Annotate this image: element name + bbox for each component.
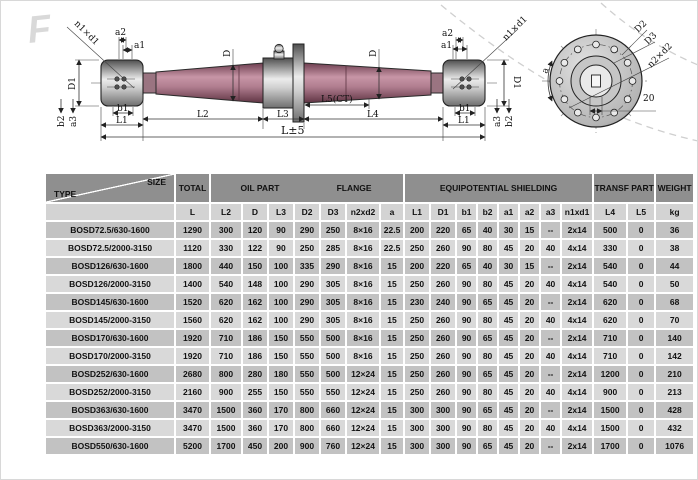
- col-header-a3: a3: [541, 204, 560, 220]
- value-cell: 150: [269, 330, 293, 346]
- svg-text:D: D: [223, 50, 233, 57]
- value-cell: 250: [405, 240, 429, 256]
- group-oil-flange: OIL PARTFLANGE: [211, 174, 403, 202]
- value-cell: 1500: [594, 420, 626, 436]
- col-header-b1: b1: [457, 204, 476, 220]
- value-cell: 660: [321, 420, 345, 436]
- value-cell: 200: [269, 438, 293, 454]
- type-cell: BOSD363/630-1600: [46, 402, 174, 418]
- svg-text:a1: a1: [134, 41, 145, 51]
- type-cell: BOSD145/2000-3150: [46, 312, 174, 328]
- corner-type-label: TYPE: [54, 189, 76, 199]
- table-row: BOSD72.5/630-16001290300120902902508×162…: [46, 222, 693, 238]
- value-cell: 20: [520, 420, 539, 436]
- value-cell: 40: [478, 258, 497, 274]
- svg-text:b1: b1: [117, 104, 129, 114]
- value-cell: 220: [431, 258, 455, 274]
- value-cell: 162: [243, 312, 267, 328]
- col-header-n1xd1: n1xd1: [562, 204, 592, 220]
- value-cell: 90: [457, 366, 476, 382]
- value-cell: 5200: [176, 438, 209, 454]
- value-cell: 45: [499, 420, 518, 436]
- value-cell: 260: [431, 240, 455, 256]
- value-cell: 260: [431, 276, 455, 292]
- value-cell: 305: [321, 276, 345, 292]
- group-header-row: SIZE TYPE TOTAL OIL PARTFLANGE EQUIPOTEN…: [46, 174, 693, 202]
- value-cell: 900: [211, 384, 241, 400]
- value-cell: 250: [405, 330, 429, 346]
- group-transf-part: TRANSF PART: [594, 174, 654, 202]
- value-cell: 300: [431, 402, 455, 418]
- table-row: BOSD550/630-16005200170045020090076012×2…: [46, 438, 693, 454]
- value-cell: 220: [431, 222, 455, 238]
- value-cell: 90: [457, 294, 476, 310]
- value-cell: 65: [457, 222, 476, 238]
- value-cell: 90: [457, 384, 476, 400]
- col-header-a2: a2: [520, 204, 539, 220]
- value-cell: 44: [656, 258, 693, 274]
- value-cell: 300: [211, 222, 241, 238]
- value-cell: 12×24: [347, 366, 379, 382]
- value-cell: 40: [541, 312, 560, 328]
- value-cell: 900: [295, 438, 319, 454]
- value-cell: 330: [594, 240, 626, 256]
- value-cell: 100: [269, 294, 293, 310]
- svg-text:D1: D1: [68, 77, 78, 90]
- value-cell: 65: [478, 330, 497, 346]
- value-cell: 0: [628, 330, 654, 346]
- table-row: BOSD145/630-160015206201621002903058×161…: [46, 294, 693, 310]
- value-cell: 15: [381, 348, 403, 364]
- value-cell: 186: [243, 348, 267, 364]
- value-cell: 40: [541, 348, 560, 364]
- value-cell: 550: [295, 384, 319, 400]
- value-cell: 65: [478, 402, 497, 418]
- value-cell: 90: [457, 276, 476, 292]
- value-cell: 40: [541, 384, 560, 400]
- value-cell: --: [541, 258, 560, 274]
- col-header-D2: D2: [295, 204, 319, 220]
- value-cell: 8×16: [347, 258, 379, 274]
- value-cell: 200: [405, 258, 429, 274]
- value-cell: 40: [541, 240, 560, 256]
- value-cell: 90: [457, 240, 476, 256]
- table-row: BOSD363/630-16003470150036017080066012×2…: [46, 402, 693, 418]
- value-cell: 45: [499, 384, 518, 400]
- value-cell: 170: [269, 402, 293, 418]
- value-cell: 0: [628, 438, 654, 454]
- value-cell: 1920: [176, 330, 209, 346]
- col-header-L1: L1: [405, 204, 429, 220]
- value-cell: 900: [594, 384, 626, 400]
- value-cell: 45: [499, 366, 518, 382]
- value-cell: 620: [211, 312, 241, 328]
- svg-text:L1: L1: [116, 116, 128, 126]
- value-cell: 240: [431, 294, 455, 310]
- type-cell: BOSD252/630-1600: [46, 366, 174, 382]
- value-cell: 170: [269, 420, 293, 436]
- corner-size-label: SIZE: [147, 177, 166, 187]
- value-cell: 80: [478, 384, 497, 400]
- value-cell: 1700: [211, 438, 241, 454]
- value-cell: 8×16: [347, 276, 379, 292]
- value-cell: 80: [478, 276, 497, 292]
- col-header-L5: L5: [628, 204, 654, 220]
- value-cell: 300: [405, 402, 429, 418]
- value-cell: --: [541, 222, 560, 238]
- value-cell: 140: [656, 330, 693, 346]
- value-cell: 550: [295, 366, 319, 382]
- value-cell: 285: [321, 240, 345, 256]
- value-cell: 12×24: [347, 420, 379, 436]
- value-cell: 305: [321, 294, 345, 310]
- value-cell: 0: [628, 402, 654, 418]
- value-cell: 8×16: [347, 330, 379, 346]
- type-cell: BOSD252/2000-3150: [46, 384, 174, 400]
- value-cell: 432: [656, 420, 693, 436]
- value-cell: 1520: [176, 294, 209, 310]
- value-cell: 1560: [176, 312, 209, 328]
- svg-text:a2: a2: [115, 28, 126, 38]
- value-cell: 90: [457, 348, 476, 364]
- value-cell: 230: [405, 294, 429, 310]
- value-cell: 50: [656, 276, 693, 292]
- value-cell: 4x14: [562, 348, 592, 364]
- value-cell: 0: [628, 384, 654, 400]
- keyed-bore: [592, 75, 601, 87]
- value-cell: 1500: [211, 402, 241, 418]
- value-cell: 2x14: [562, 222, 592, 238]
- type-cell: BOSD170/630-1600: [46, 330, 174, 346]
- value-cell: 260: [431, 348, 455, 364]
- value-cell: 250: [321, 222, 345, 238]
- value-cell: 250: [405, 348, 429, 364]
- svg-text:b2: b2: [505, 116, 515, 128]
- col-header-D: D: [243, 204, 267, 220]
- spec-table: SIZE TYPE TOTAL OIL PARTFLANGE EQUIPOTEN…: [44, 172, 695, 456]
- value-cell: 70: [656, 312, 693, 328]
- value-cell: 1076: [656, 438, 693, 454]
- value-cell: 280: [243, 366, 267, 382]
- type-cell: BOSD72.5/2000-3150: [46, 240, 174, 256]
- value-cell: 38: [656, 240, 693, 256]
- svg-text:a3: a3: [69, 116, 79, 127]
- value-cell: 335: [295, 258, 319, 274]
- value-cell: --: [541, 402, 560, 418]
- left-journal: [101, 60, 143, 106]
- value-cell: 15: [381, 402, 403, 418]
- table-row: BOSD126/630-160018004401501003352908×161…: [46, 258, 693, 274]
- table-row: BOSD170/2000-315019207101861505505008×16…: [46, 348, 693, 364]
- spec-table-body: BOSD72.5/630-16001290300120902902508×162…: [46, 222, 693, 454]
- svg-text:D: D: [369, 50, 379, 57]
- value-cell: 250: [405, 366, 429, 382]
- value-cell: 12×24: [347, 402, 379, 418]
- svg-text:a1: a1: [441, 41, 452, 51]
- value-cell: 550: [321, 384, 345, 400]
- catalog-page: { "drawing": { "watermark": "F", "shaft"…: [0, 0, 698, 480]
- value-cell: 255: [243, 384, 267, 400]
- value-cell: 45: [499, 402, 518, 418]
- value-cell: 800: [211, 366, 241, 382]
- value-cell: 8×16: [347, 222, 379, 238]
- value-cell: 250: [295, 240, 319, 256]
- value-cell: 0: [628, 222, 654, 238]
- value-cell: 0: [628, 240, 654, 256]
- value-cell: 710: [594, 348, 626, 364]
- value-cell: 80: [478, 420, 497, 436]
- value-cell: 4x14: [562, 384, 592, 400]
- value-cell: 15: [520, 222, 539, 238]
- type-cell: BOSD170/2000-3150: [46, 348, 174, 364]
- value-cell: 360: [243, 402, 267, 418]
- value-cell: 1500: [211, 420, 241, 436]
- svg-text:b2: b2: [57, 116, 67, 128]
- value-cell: 290: [295, 222, 319, 238]
- value-cell: --: [541, 438, 560, 454]
- value-cell: 290: [295, 312, 319, 328]
- value-cell: 550: [295, 330, 319, 346]
- col-header-kg: kg: [656, 204, 693, 220]
- col-header-L2: L2: [211, 204, 241, 220]
- value-cell: 15: [381, 366, 403, 382]
- value-cell: 100: [269, 276, 293, 292]
- value-cell: 45: [499, 312, 518, 328]
- svg-text:n1×d1: n1×d1: [72, 19, 101, 48]
- value-cell: 120: [243, 222, 267, 238]
- value-cell: 15: [381, 438, 403, 454]
- table-row: BOSD126/2000-315014005401481002903058×16…: [46, 276, 693, 292]
- value-cell: 20: [520, 438, 539, 454]
- right-journal: [443, 60, 485, 106]
- value-cell: 45: [499, 240, 518, 256]
- value-cell: 15: [520, 258, 539, 274]
- corner-cell: SIZE TYPE: [46, 174, 174, 202]
- value-cell: 150: [269, 384, 293, 400]
- svg-text:D2: D2: [633, 19, 649, 35]
- value-cell: 2680: [176, 366, 209, 382]
- value-cell: 0: [628, 348, 654, 364]
- value-cell: 30: [499, 258, 518, 274]
- value-cell: 80: [478, 240, 497, 256]
- value-cell: 800: [295, 420, 319, 436]
- value-cell: 710: [211, 348, 241, 364]
- value-cell: 100: [269, 312, 293, 328]
- table-row: BOSD363/2000-31503470150036017080066012×…: [46, 420, 693, 436]
- value-cell: 20: [520, 366, 539, 382]
- value-cell: 2x14: [562, 294, 592, 310]
- value-cell: 30: [499, 222, 518, 238]
- value-cell: 20: [520, 276, 539, 292]
- table-row: BOSD252/630-1600268080028018055050012×24…: [46, 366, 693, 382]
- value-cell: 20: [520, 384, 539, 400]
- value-cell: 550: [295, 348, 319, 364]
- value-cell: 45: [499, 276, 518, 292]
- value-cell: 22.5: [381, 222, 403, 238]
- value-cell: 660: [321, 402, 345, 418]
- value-cell: 300: [405, 438, 429, 454]
- value-cell: 40: [478, 222, 497, 238]
- value-cell: 540: [594, 276, 626, 292]
- value-cell: 90: [457, 330, 476, 346]
- value-cell: 250: [405, 312, 429, 328]
- svg-text:n1×d1: n1×d1: [501, 14, 530, 43]
- value-cell: 2x14: [562, 258, 592, 274]
- svg-text:L3: L3: [277, 110, 289, 120]
- value-cell: 45: [499, 348, 518, 364]
- value-cell: 300: [431, 438, 455, 454]
- value-cell: 20: [520, 330, 539, 346]
- value-cell: 3470: [176, 402, 209, 418]
- value-cell: 80: [478, 312, 497, 328]
- value-cell: 440: [211, 258, 241, 274]
- value-cell: 540: [594, 258, 626, 274]
- value-cell: 8×16: [347, 348, 379, 364]
- value-cell: --: [541, 330, 560, 346]
- table-row: BOSD72.5/2000-31501120330122902502858×16…: [46, 240, 693, 256]
- value-cell: 260: [431, 312, 455, 328]
- col-header-L3: L3: [269, 204, 293, 220]
- value-cell: 4x14: [562, 312, 592, 328]
- value-cell: 1120: [176, 240, 209, 256]
- value-cell: 450: [243, 438, 267, 454]
- value-cell: 210: [656, 366, 693, 382]
- value-cell: 620: [594, 312, 626, 328]
- col-header-a: a: [381, 204, 403, 220]
- value-cell: 90: [457, 402, 476, 418]
- value-cell: 142: [656, 348, 693, 364]
- value-cell: 500: [321, 366, 345, 382]
- value-cell: 8×16: [347, 312, 379, 328]
- value-cell: 200: [405, 222, 429, 238]
- value-cell: 4x14: [562, 276, 592, 292]
- value-cell: 2x14: [562, 330, 592, 346]
- value-cell: 1500: [594, 402, 626, 418]
- svg-text:L2: L2: [197, 110, 209, 120]
- group-weight: WEIGHT: [656, 174, 693, 202]
- col-header-D3: D3: [321, 204, 345, 220]
- value-cell: 20: [520, 294, 539, 310]
- value-cell: 15: [381, 294, 403, 310]
- value-cell: 710: [594, 330, 626, 346]
- value-cell: 45: [499, 330, 518, 346]
- col-header-b2: b2: [478, 204, 497, 220]
- value-cell: 1290: [176, 222, 209, 238]
- type-cell: BOSD550/630-1600: [46, 438, 174, 454]
- value-cell: 290: [295, 276, 319, 292]
- value-cell: 760: [321, 438, 345, 454]
- value-cell: 20: [520, 240, 539, 256]
- value-cell: 90: [457, 438, 476, 454]
- value-cell: 15: [381, 312, 403, 328]
- value-cell: 68: [656, 294, 693, 310]
- value-cell: 4x14: [562, 420, 592, 436]
- svg-text:L1: L1: [458, 116, 470, 126]
- group-oil-part: OIL PART: [213, 183, 307, 193]
- value-cell: 45: [499, 438, 518, 454]
- value-cell: 20: [520, 312, 539, 328]
- value-cell: --: [541, 366, 560, 382]
- table-row: BOSD170/630-160019207101861505505008×161…: [46, 330, 693, 346]
- shaft-drawing: F n1×d1: [1, 1, 698, 171]
- type-cell: BOSD72.5/630-1600: [46, 222, 174, 238]
- value-cell: 305: [321, 312, 345, 328]
- value-cell: 260: [431, 330, 455, 346]
- value-cell: 20: [520, 348, 539, 364]
- svg-text:a3: a3: [493, 116, 503, 127]
- value-cell: 250: [405, 384, 429, 400]
- value-cell: 15: [381, 258, 403, 274]
- value-cell: 100: [269, 258, 293, 274]
- value-cell: 300: [431, 420, 455, 436]
- value-cell: 22.5: [381, 240, 403, 256]
- value-cell: 65: [478, 366, 497, 382]
- value-cell: 500: [321, 348, 345, 364]
- value-cell: 260: [431, 384, 455, 400]
- value-cell: 2x14: [562, 402, 592, 418]
- col-header-D1: D1: [431, 204, 455, 220]
- value-cell: 360: [243, 420, 267, 436]
- type-cell: BOSD363/2000-3150: [46, 420, 174, 436]
- svg-text:20: 20: [643, 94, 655, 104]
- table-row: BOSD252/2000-3150216090025515055055012×2…: [46, 384, 693, 400]
- type-cell: BOSD126/2000-3150: [46, 276, 174, 292]
- value-cell: 290: [321, 258, 345, 274]
- value-cell: 12×24: [347, 438, 379, 454]
- value-cell: 65: [478, 294, 497, 310]
- col-header-a1: a1: [499, 204, 518, 220]
- svg-text:L±5: L±5: [281, 124, 305, 137]
- value-cell: 1400: [176, 276, 209, 292]
- value-cell: 45: [499, 294, 518, 310]
- value-cell: 1800: [176, 258, 209, 274]
- value-cell: 500: [594, 222, 626, 238]
- subheader-row: LL2DL3D2D3n2xd2aL1D1b1b2a1a2a3n1xd1L4L5k…: [46, 204, 693, 220]
- spec-table-wrap: SIZE TYPE TOTAL OIL PARTFLANGE EQUIPOTEN…: [44, 172, 695, 456]
- value-cell: 800: [295, 402, 319, 418]
- value-cell: 620: [594, 294, 626, 310]
- value-cell: 186: [243, 330, 267, 346]
- group-total: TOTAL: [176, 174, 209, 202]
- watermark-logo: F: [26, 8, 55, 52]
- svg-text:b1: b1: [459, 104, 471, 114]
- value-cell: 80: [478, 348, 497, 364]
- value-cell: 40: [541, 276, 560, 292]
- value-cell: 0: [628, 294, 654, 310]
- value-cell: 300: [405, 420, 429, 436]
- value-cell: 150: [269, 348, 293, 364]
- value-cell: 40: [541, 420, 560, 436]
- value-cell: 428: [656, 402, 693, 418]
- value-cell: 150: [243, 258, 267, 274]
- value-cell: 290: [295, 294, 319, 310]
- value-cell: 0: [628, 420, 654, 436]
- value-cell: 1200: [594, 366, 626, 382]
- type-cell: BOSD126/630-1600: [46, 258, 174, 274]
- value-cell: 0: [628, 366, 654, 382]
- value-cell: 0: [628, 276, 654, 292]
- value-cell: 1700: [594, 438, 626, 454]
- svg-text:D1: D1: [511, 76, 521, 89]
- value-cell: 20: [520, 402, 539, 418]
- col-header-L: L: [176, 204, 209, 220]
- value-cell: 3470: [176, 420, 209, 436]
- value-cell: 90: [269, 222, 293, 238]
- value-cell: --: [541, 294, 560, 310]
- value-cell: 330: [211, 240, 241, 256]
- value-cell: 0: [628, 312, 654, 328]
- table-row: BOSD145/2000-315015606201621002903058×16…: [46, 312, 693, 328]
